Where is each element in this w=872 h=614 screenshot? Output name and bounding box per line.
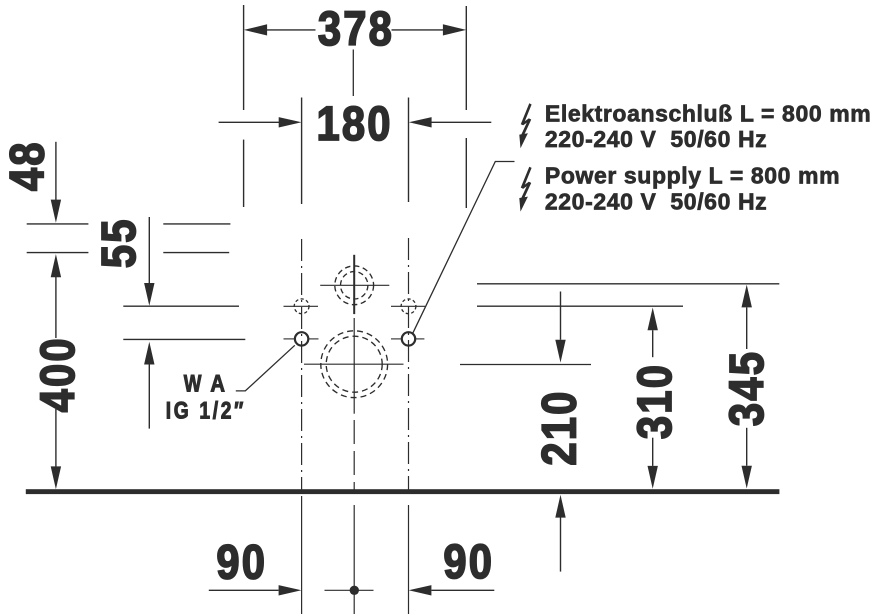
svg-text:210: 210 [532,390,586,466]
svg-text:220-240 V 50/60 Hz: 220-240 V 50/60 Hz [545,188,767,214]
svg-text:55: 55 [91,217,145,268]
svg-text:Elektroanschluß L = 800 mm: Elektroanschluß L = 800 mm [545,101,871,127]
svg-text:A: A [210,370,225,397]
svg-text:W: W [184,370,202,397]
svg-text:180: 180 [317,96,393,150]
svg-text:Power supply L = 800 mm: Power supply L = 800 mm [545,162,840,188]
svg-text:IG 1/2″: IG 1/2″ [166,397,246,425]
svg-text:345: 345 [719,350,773,426]
svg-text:48: 48 [0,140,54,191]
svg-text:90: 90 [443,534,494,588]
svg-text:378: 378 [318,1,394,55]
svg-text:220-240 V 50/60 Hz: 220-240 V 50/60 Hz [545,126,767,152]
svg-text:90: 90 [216,535,267,589]
svg-text:400: 400 [30,336,84,412]
svg-text:310: 310 [627,363,681,439]
